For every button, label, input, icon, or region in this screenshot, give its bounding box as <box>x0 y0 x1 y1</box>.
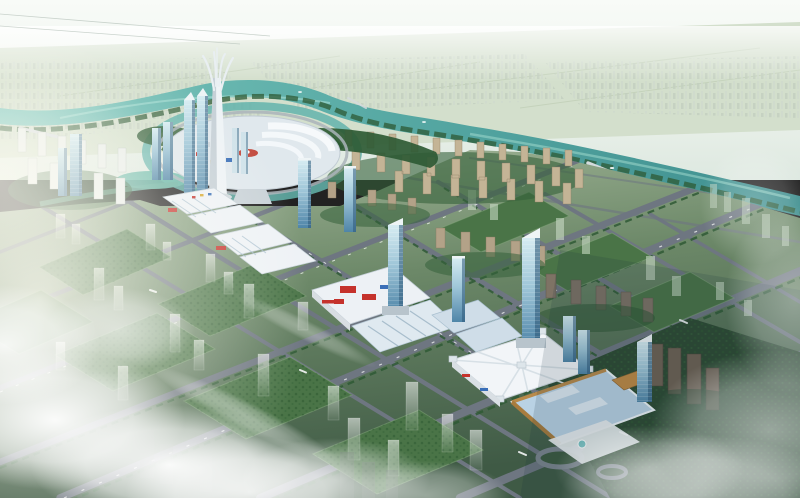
aerial-city-rendering <box>0 0 800 498</box>
glass-tower <box>452 256 465 322</box>
glass-tower <box>298 158 311 228</box>
row-trees-1 <box>320 203 430 227</box>
cloud <box>45 288 195 372</box>
scene-canvas <box>0 0 800 498</box>
glass-tower <box>344 166 356 232</box>
